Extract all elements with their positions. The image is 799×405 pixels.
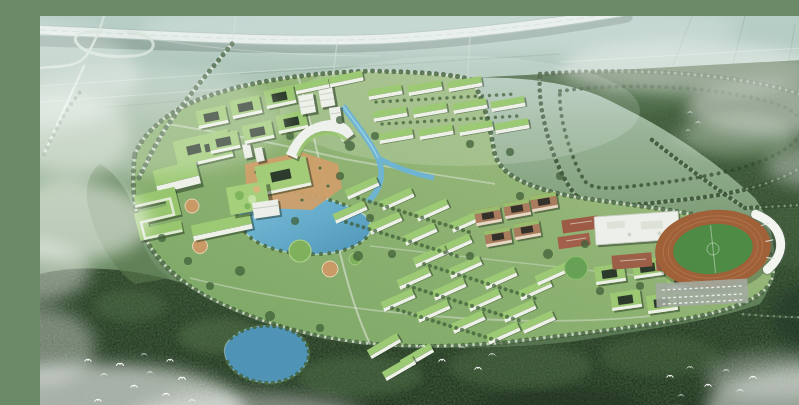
parking-lot (655, 279, 748, 308)
campus-aerial-rendering (40, 16, 799, 405)
lawn-circle (565, 257, 588, 280)
aerial-rendering-svg (40, 16, 799, 405)
